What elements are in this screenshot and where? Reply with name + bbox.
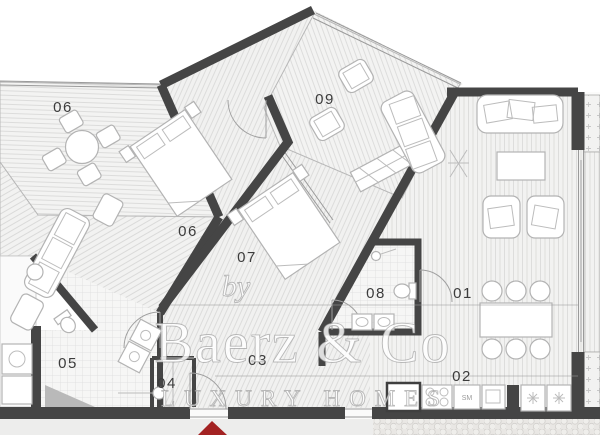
outdoor-unit-top — [2, 344, 32, 374]
balcony-planter-top — [584, 95, 600, 152]
room-label-01: 01 — [453, 285, 473, 302]
room-label-09: 09 — [315, 91, 335, 108]
watermark-tagline: LUXURY HOMES — [161, 386, 449, 411]
cobblestone-pavement — [373, 419, 600, 435]
room-label-05: 05 — [58, 355, 78, 372]
dining-set — [480, 281, 552, 359]
dining-table — [480, 303, 552, 337]
floor-plan-canvas: SM — [0, 0, 600, 435]
shower-head-icon — [372, 252, 381, 261]
outdoor-unit-bottom — [2, 376, 32, 404]
room-label-08: 08 — [366, 285, 386, 302]
room-label-06-terrace: 06 — [53, 99, 73, 116]
floor-plan-page: SM — [0, 0, 600, 435]
coffee-table — [497, 152, 545, 180]
wall-kitchen-pier — [507, 385, 519, 411]
sidewalk — [0, 419, 373, 435]
toilet-icon — [394, 284, 410, 298]
balcony-planter-bottom — [584, 352, 600, 410]
sm-unit-label: SM — [462, 395, 473, 402]
balcony-deck — [584, 152, 600, 352]
watermark-by: by — [222, 270, 251, 303]
room-label-02: 02 — [452, 368, 472, 385]
kitchen-sink — [482, 385, 505, 409]
room-label-06-bedroom: 06 — [178, 223, 198, 240]
room-label-07: 07 — [237, 249, 257, 266]
watermark-brand: Baerz & Co — [154, 310, 451, 375]
